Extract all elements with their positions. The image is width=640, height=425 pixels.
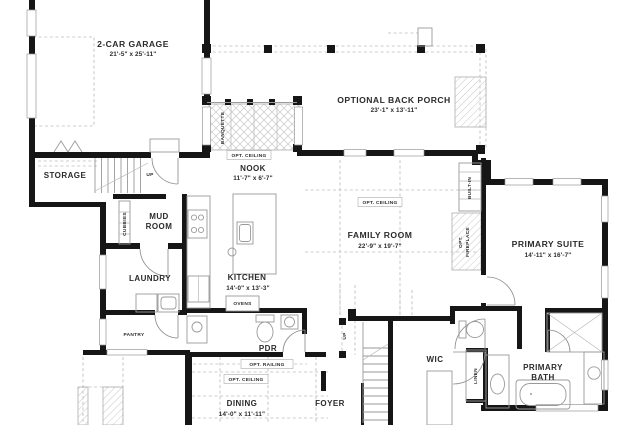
window	[394, 150, 424, 157]
butler-cabinet	[187, 316, 207, 343]
garage-service-door	[54, 141, 82, 152]
window	[27, 54, 36, 118]
range-burners	[191, 215, 203, 233]
porch-column-footing	[418, 28, 432, 46]
opt-ceiling-nook-label: OPT. CEILING	[231, 153, 266, 159]
nook-label: NOOK	[240, 164, 266, 173]
shower-glass-lines	[547, 313, 602, 352]
garage-stoop	[150, 139, 179, 152]
laundry-label: LAUNDRY	[129, 274, 171, 283]
porch-dims: 23'-1" x 13'-11"	[371, 107, 418, 114]
opt-fireplace-label-line1: OPT.	[458, 236, 464, 248]
up-label-foyer-stairs: UP	[342, 332, 348, 340]
primary-bath-label-line2: BATH	[531, 373, 554, 382]
bath-sink-left	[491, 374, 505, 394]
range	[188, 210, 207, 238]
exterior-walls	[29, 0, 608, 425]
annotation-boxes	[224, 151, 402, 384]
powder-toilet-tank	[256, 315, 274, 322]
bath-sink-right	[588, 367, 600, 379]
opt-railing-label: OPT. RAILING	[249, 362, 284, 368]
dining-dims: 14'-0" x 11'-11"	[219, 411, 265, 418]
garage-label: 2-CAR GARAGE	[97, 39, 169, 49]
laundry-door	[140, 249, 168, 276]
porch-fireplace	[455, 77, 486, 127]
window	[202, 58, 211, 94]
walls	[29, 0, 608, 425]
bath-vanity-left	[486, 355, 509, 408]
floor-plan-page: 2-CAR GARAGE 21'-5" x 25'-11" OPTIONAL B…	[0, 0, 640, 425]
window	[107, 350, 147, 356]
powder-room-label: PDR	[259, 344, 277, 353]
window	[553, 179, 581, 186]
bath-vanity-right	[584, 352, 604, 404]
cubbies-label: CUBBIES	[122, 212, 128, 236]
bay-window-left	[203, 107, 211, 145]
butler-sink	[192, 322, 202, 332]
island-sink-basin	[240, 225, 251, 242]
opt-ceiling-dining-label: OPT. CEILING	[228, 377, 263, 383]
banquette-label: BANQUETTE	[220, 111, 226, 144]
island-disposal	[228, 248, 236, 256]
opt-ceiling-family-label: OPT. CEILING	[362, 200, 397, 206]
primary-bath-label-line1: PRIMARY	[523, 363, 563, 372]
doors	[54, 141, 570, 384]
garage-attic-dashed-outline	[33, 37, 94, 126]
wic-door	[453, 352, 485, 384]
wc-toilet-bowl	[467, 322, 484, 338]
family-room-label: FAMILY ROOM	[348, 230, 413, 240]
kitchen-dims: 14'-0" x 13'-3"	[226, 285, 269, 292]
primary-suite-dims: 14'-11" x 16'-7"	[525, 252, 572, 259]
window	[100, 319, 107, 345]
hatched-elements	[78, 77, 486, 425]
wic-label: WIC	[427, 355, 444, 364]
floor-plan-canvas: 2-CAR GARAGE 21'-5" x 25'-11" OPTIONAL B…	[0, 0, 640, 425]
powder-toilet-bowl	[257, 322, 273, 342]
pantry-label: PANTRY	[124, 332, 145, 338]
primary-suite-label: PRIMARY SUITE	[512, 239, 585, 249]
garage-mudroom-door	[152, 158, 178, 184]
primary-suite-door	[487, 277, 515, 305]
kitchen-label: KITCHEN	[228, 273, 267, 282]
mudroom-label-line2: ROOM	[146, 222, 173, 231]
storage-attic-dashed-lines	[38, 161, 98, 166]
laundry-sink-basin	[161, 297, 176, 309]
wic-island	[427, 371, 452, 425]
mudroom-label-line1: MUD	[149, 212, 169, 221]
front-porch-column-partial	[78, 387, 88, 425]
window	[27, 10, 36, 36]
window	[602, 196, 609, 222]
front-porch-column	[103, 387, 123, 425]
bathtub	[520, 384, 566, 406]
nook-dims: 11'-7" x 6'-7"	[233, 175, 272, 182]
storage-label: STORAGE	[44, 171, 87, 180]
bay-window-right	[295, 107, 303, 145]
linen-label: LINEN	[473, 368, 479, 384]
powder-sink	[285, 317, 295, 327]
foyer-stairs-break-line	[363, 344, 388, 360]
built-in-label: BUILT-IN	[467, 177, 473, 200]
up-label-back-stairs: UP	[146, 172, 154, 178]
dining-label: DINING	[227, 399, 258, 408]
opt-fireplace-label-line2: FIREPLACE	[465, 227, 471, 257]
window	[602, 360, 609, 390]
powder-room-door	[283, 330, 305, 352]
window	[100, 255, 107, 289]
windows	[27, 10, 608, 411]
window	[505, 179, 533, 186]
tub-drain	[530, 393, 532, 395]
pantry-door	[155, 315, 178, 338]
garage-dims: 21'-5" x 25'-11"	[110, 51, 157, 58]
ovens-label: OVENS	[233, 301, 252, 307]
interior-walls	[103, 158, 608, 425]
labels: 2-CAR GARAGE 21'-5" x 25'-11" OPTIONAL B…	[44, 39, 585, 418]
foyer-label: FOYER	[315, 399, 345, 408]
porch-label: OPTIONAL BACK PORCH	[337, 95, 450, 105]
foyer-stairs-treads	[363, 322, 388, 423]
window	[344, 150, 366, 157]
window	[602, 266, 609, 298]
family-room-dims: 22'-9" x 19'-7"	[358, 243, 401, 250]
washer	[136, 294, 157, 312]
